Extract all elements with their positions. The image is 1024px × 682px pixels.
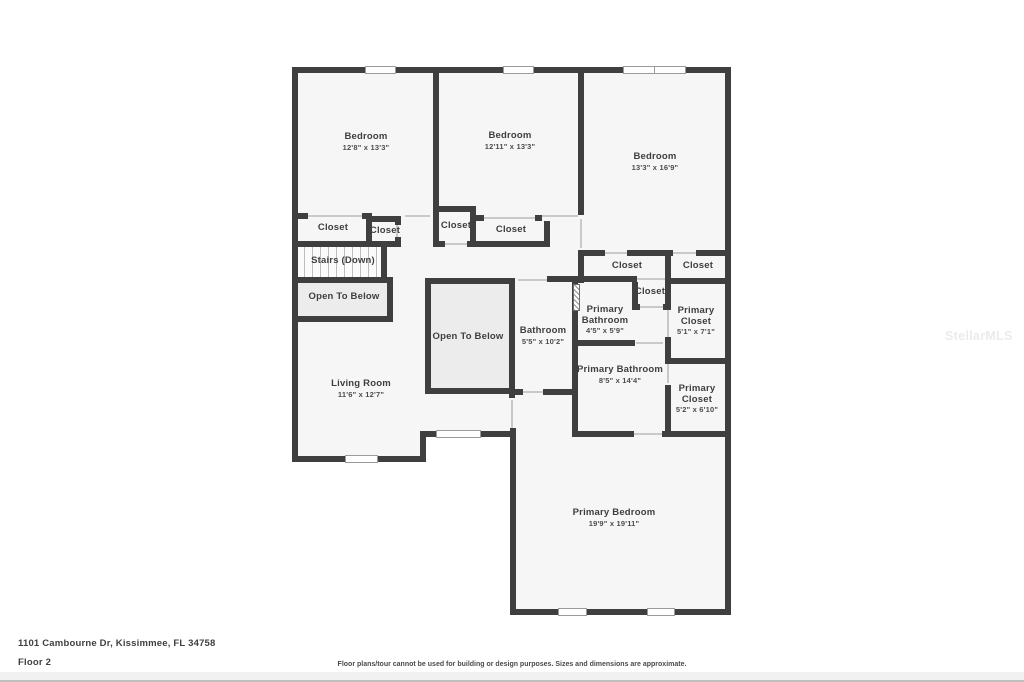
room-name: Closet: [370, 226, 400, 237]
door-opening: [445, 243, 467, 245]
room-name: Closet: [635, 287, 665, 298]
wall: [515, 389, 523, 395]
door-opening: [484, 217, 535, 219]
wall: [476, 215, 484, 221]
room-name: Bedroom: [485, 131, 536, 142]
wall: [296, 277, 393, 283]
door-opening: [667, 364, 669, 383]
room-name: Closet: [496, 225, 526, 236]
room-label-primary-closet-2: Primary Closet5'2" x 6'10": [673, 384, 721, 415]
room-name: Stairs (Down): [311, 256, 375, 267]
room-name: Closet: [683, 261, 713, 272]
door-opening: [523, 391, 543, 393]
window: [623, 66, 655, 74]
window: [503, 66, 534, 74]
wall: [632, 304, 640, 310]
disclaimer-text: Floor plans/tour cannot be used for buil…: [0, 661, 1024, 668]
room-label-bedroom-3: Bedroom13'3" x 16'9": [632, 152, 679, 172]
window: [345, 455, 378, 463]
room-name: Bedroom: [343, 132, 390, 143]
room-label-bathroom: Bathroom5'5" x 10'2": [520, 326, 566, 346]
door-opening: [640, 306, 663, 308]
room-name: Bathroom: [520, 326, 566, 337]
door-opening: [667, 310, 669, 337]
room-label-primary-bathroom-small: Primary Bathroom4'5" x 5'9": [578, 305, 633, 336]
room-dimensions: 12'11" x 13'3": [485, 142, 536, 152]
room-dimensions: 5'1" x 7'1": [672, 327, 720, 337]
wall: [665, 278, 731, 284]
wall: [433, 241, 445, 247]
wall: [725, 67, 731, 615]
room-label-closet-bedroom1-a: Closet: [318, 223, 348, 234]
wall: [665, 358, 731, 364]
room-name: Open To Below: [308, 292, 379, 303]
door-opening: [605, 252, 627, 254]
wall: [420, 431, 436, 437]
wall: [381, 247, 387, 277]
room-label-bedroom-2: Bedroom12'11" x 13'3": [485, 131, 536, 151]
door-opening: [511, 400, 513, 428]
wall: [509, 278, 515, 398]
room-name: Living Room: [331, 379, 391, 390]
room-dimensions: 5'5" x 10'2": [520, 337, 566, 347]
stair-tread: [376, 247, 377, 277]
floor-plan-page: Bedroom12'8" x 13'3"Bedroom12'11" x 13'3…: [0, 0, 1024, 682]
room-name: Bedroom: [632, 152, 679, 163]
room-label-closet-bedroom2-a: Closet: [441, 221, 471, 232]
room-dimensions: 4'5" x 5'9": [578, 326, 633, 336]
room-dimensions: 12'8" x 13'3": [343, 143, 390, 153]
room-label-closet-bedroom2-b: Closet: [496, 225, 526, 236]
wall: [510, 609, 731, 615]
room-name: Primary Bathroom: [578, 305, 633, 326]
door-opening: [518, 279, 547, 281]
room-label-open-to-below-center: Open To Below: [432, 332, 503, 343]
room-name: Closet: [318, 223, 348, 234]
room-name: Open To Below: [432, 332, 503, 343]
room-label-primary-bedroom: Primary Bedroom19'9" x 19'11": [573, 508, 656, 528]
door-opening: [636, 342, 663, 344]
wall: [292, 316, 393, 322]
door-opening: [673, 252, 696, 254]
wall: [578, 250, 605, 256]
room-name: Closet: [612, 261, 642, 272]
room-dimensions: 13'3" x 16'9": [632, 163, 679, 173]
wall: [662, 431, 731, 437]
room-name: Closet: [441, 221, 471, 232]
room-label-closet-bedroom3-a: Closet: [612, 261, 642, 272]
door-opening: [637, 278, 665, 280]
address-text: 1101 Cambourne Dr, Kissimmee, FL 34758: [18, 638, 216, 649]
door-opening: [308, 215, 362, 217]
wall: [535, 215, 542, 221]
room-label-primary-closet-1: Primary Closet5'1" x 7'1": [672, 306, 720, 337]
wall: [572, 431, 634, 437]
room-dimensions: 11'6" x 12'7": [331, 390, 391, 400]
room-label-stairs-down: Stairs (Down): [311, 256, 375, 267]
wall: [467, 241, 550, 247]
wall: [425, 278, 431, 394]
wall: [578, 340, 635, 346]
window: [647, 608, 675, 616]
wall: [425, 388, 515, 394]
wall: [292, 67, 298, 462]
room-name: Primary Closet: [672, 306, 720, 327]
wall: [547, 276, 578, 282]
wall: [578, 276, 637, 282]
door-opening: [405, 215, 430, 217]
wall: [543, 389, 578, 395]
room-label-closet-bedroom3-b: Closet: [683, 261, 713, 272]
watermark-text: StellarMLS: [945, 329, 1013, 343]
wall: [292, 213, 308, 219]
room-label-closet-bedroom1-b: Closet: [370, 226, 400, 237]
wall: [578, 73, 584, 215]
door-opening: [634, 433, 662, 435]
room-label-closet-small: Closet: [635, 287, 665, 298]
room-name: Primary Bedroom: [573, 508, 656, 519]
room-label-primary-bathroom: Primary Bathroom8'5" x 14'4": [577, 365, 663, 385]
wall: [544, 221, 550, 243]
room-dimensions: 5'2" x 6'10": [673, 405, 721, 415]
floor-plan: Bedroom12'8" x 13'3"Bedroom12'11" x 13'3…: [0, 0, 1024, 682]
window: [654, 66, 686, 74]
wall: [510, 428, 516, 615]
room-name: Primary Bathroom: [577, 365, 663, 376]
footer-bar: [0, 672, 1024, 680]
window: [436, 430, 481, 438]
room-label-open-to-below-left: Open To Below: [308, 292, 379, 303]
wall: [395, 216, 401, 225]
wall: [696, 250, 731, 256]
room-dimensions: 8'5" x 14'4": [577, 376, 663, 386]
wall: [665, 385, 671, 437]
room-dimensions: 19'9" x 19'11": [573, 519, 656, 529]
wall: [433, 73, 439, 247]
room-name: Primary Closet: [673, 384, 721, 405]
window: [365, 66, 396, 74]
wall: [425, 278, 515, 284]
room-label-living-room: Living Room11'6" x 12'7": [331, 379, 391, 399]
door-opening: [542, 215, 578, 217]
room-label-bedroom-1: Bedroom12'8" x 13'3": [343, 132, 390, 152]
window: [558, 608, 587, 616]
door-opening: [580, 219, 582, 248]
stair-tread: [304, 247, 305, 277]
